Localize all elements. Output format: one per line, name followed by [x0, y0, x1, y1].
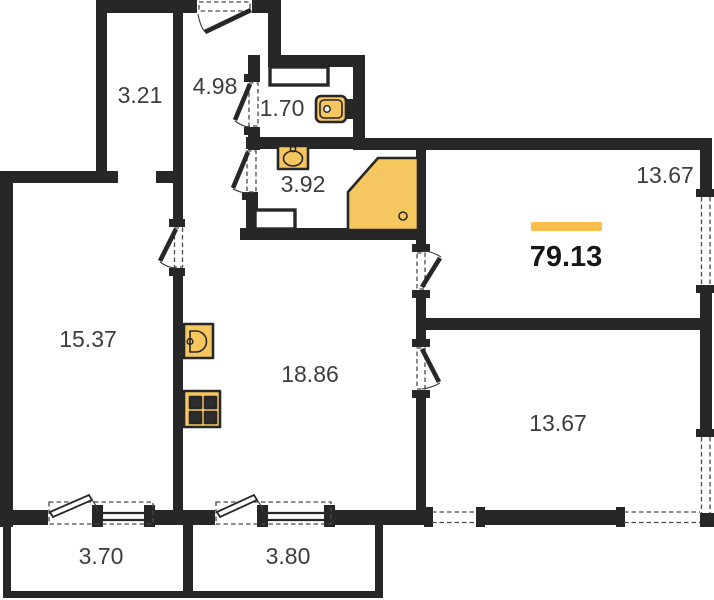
wall-segment	[173, 268, 183, 513]
wall-segment	[156, 171, 175, 183]
total-area-label: 79.13	[530, 241, 603, 273]
room-label-bathroom: 3.92	[281, 171, 326, 197]
total-area-underline	[531, 222, 602, 231]
wall-openings	[48, 0, 712, 525]
stove-burner	[205, 412, 216, 423]
bathroom-door-leaf	[233, 152, 248, 188]
wall-segment	[416, 390, 426, 513]
wall-segment	[0, 510, 48, 525]
balcony-wall	[375, 525, 383, 595]
walls	[0, 0, 714, 598]
wall-segment	[700, 513, 714, 527]
wall-segment	[416, 290, 426, 347]
window-jamb	[424, 507, 433, 527]
wall-segment	[96, 0, 107, 177]
kitchen-sink-icon	[184, 324, 213, 358]
bathtub-icon	[348, 158, 418, 230]
window-jamb	[696, 285, 714, 293]
bathroom-door-arc	[233, 189, 248, 193]
wall-segment	[700, 285, 712, 437]
wall-segment	[477, 510, 624, 525]
door-jamb	[169, 268, 185, 276]
toilet-icon-button	[324, 106, 330, 112]
room-label-closet: 3.21	[118, 82, 163, 108]
balcony-wall	[3, 525, 11, 598]
wall-segment	[325, 510, 432, 525]
stove-burner	[205, 397, 216, 408]
entrance-door-leaf	[205, 10, 251, 32]
room-label-kitchen-living: 18.86	[281, 361, 339, 387]
window-jamb	[696, 429, 714, 437]
room-label-left: 15.37	[59, 326, 117, 352]
stove-burner	[190, 397, 201, 408]
vent-shaft-box	[255, 210, 295, 229]
floor-plan: 3.21 4.98 1.70 3.92 13.67 15.37 18.86 13…	[0, 0, 714, 600]
balcony-wall	[183, 591, 383, 598]
wall-segment	[268, 55, 365, 67]
window-jamb	[696, 189, 714, 197]
wall-segment	[3, 171, 118, 183]
window-jamb	[476, 507, 485, 527]
wall-segment	[0, 171, 13, 527]
wall-segment	[252, 0, 281, 13]
vent-shaft-box	[270, 67, 328, 85]
door-jamb	[244, 74, 260, 82]
door-jamb	[169, 219, 185, 227]
room-label-wc: 1.70	[260, 95, 305, 121]
balcony-wall	[183, 525, 193, 595]
entrance-door-arc	[198, 14, 205, 32]
door-jamb	[244, 127, 260, 135]
room-label-hallway: 4.98	[193, 73, 238, 99]
wall-segment	[173, 13, 183, 227]
room-label-top-right: 13.67	[636, 162, 694, 188]
door-jamb	[412, 290, 430, 298]
room-label-balcony-left: 3.70	[79, 543, 124, 569]
room-label-bottom-right: 13.67	[529, 410, 587, 436]
stove-burner	[190, 412, 201, 423]
opening	[700, 197, 712, 285]
balcony-wall	[3, 591, 193, 598]
floor-plan-canvas: 3.21 4.98 1.70 3.92 13.67 15.37 18.86 13…	[0, 0, 714, 600]
door-jamb	[412, 390, 430, 398]
wall-segment	[426, 318, 702, 330]
wc-door-arc	[235, 121, 250, 127]
wall-segment	[353, 138, 712, 150]
door-jamb	[412, 339, 430, 347]
windows	[49, 197, 710, 524]
door-jamb	[412, 244, 430, 252]
window-jamb	[616, 507, 625, 527]
wall-segment	[96, 0, 197, 13]
room-label-balcony-right: 3.80	[266, 543, 311, 569]
